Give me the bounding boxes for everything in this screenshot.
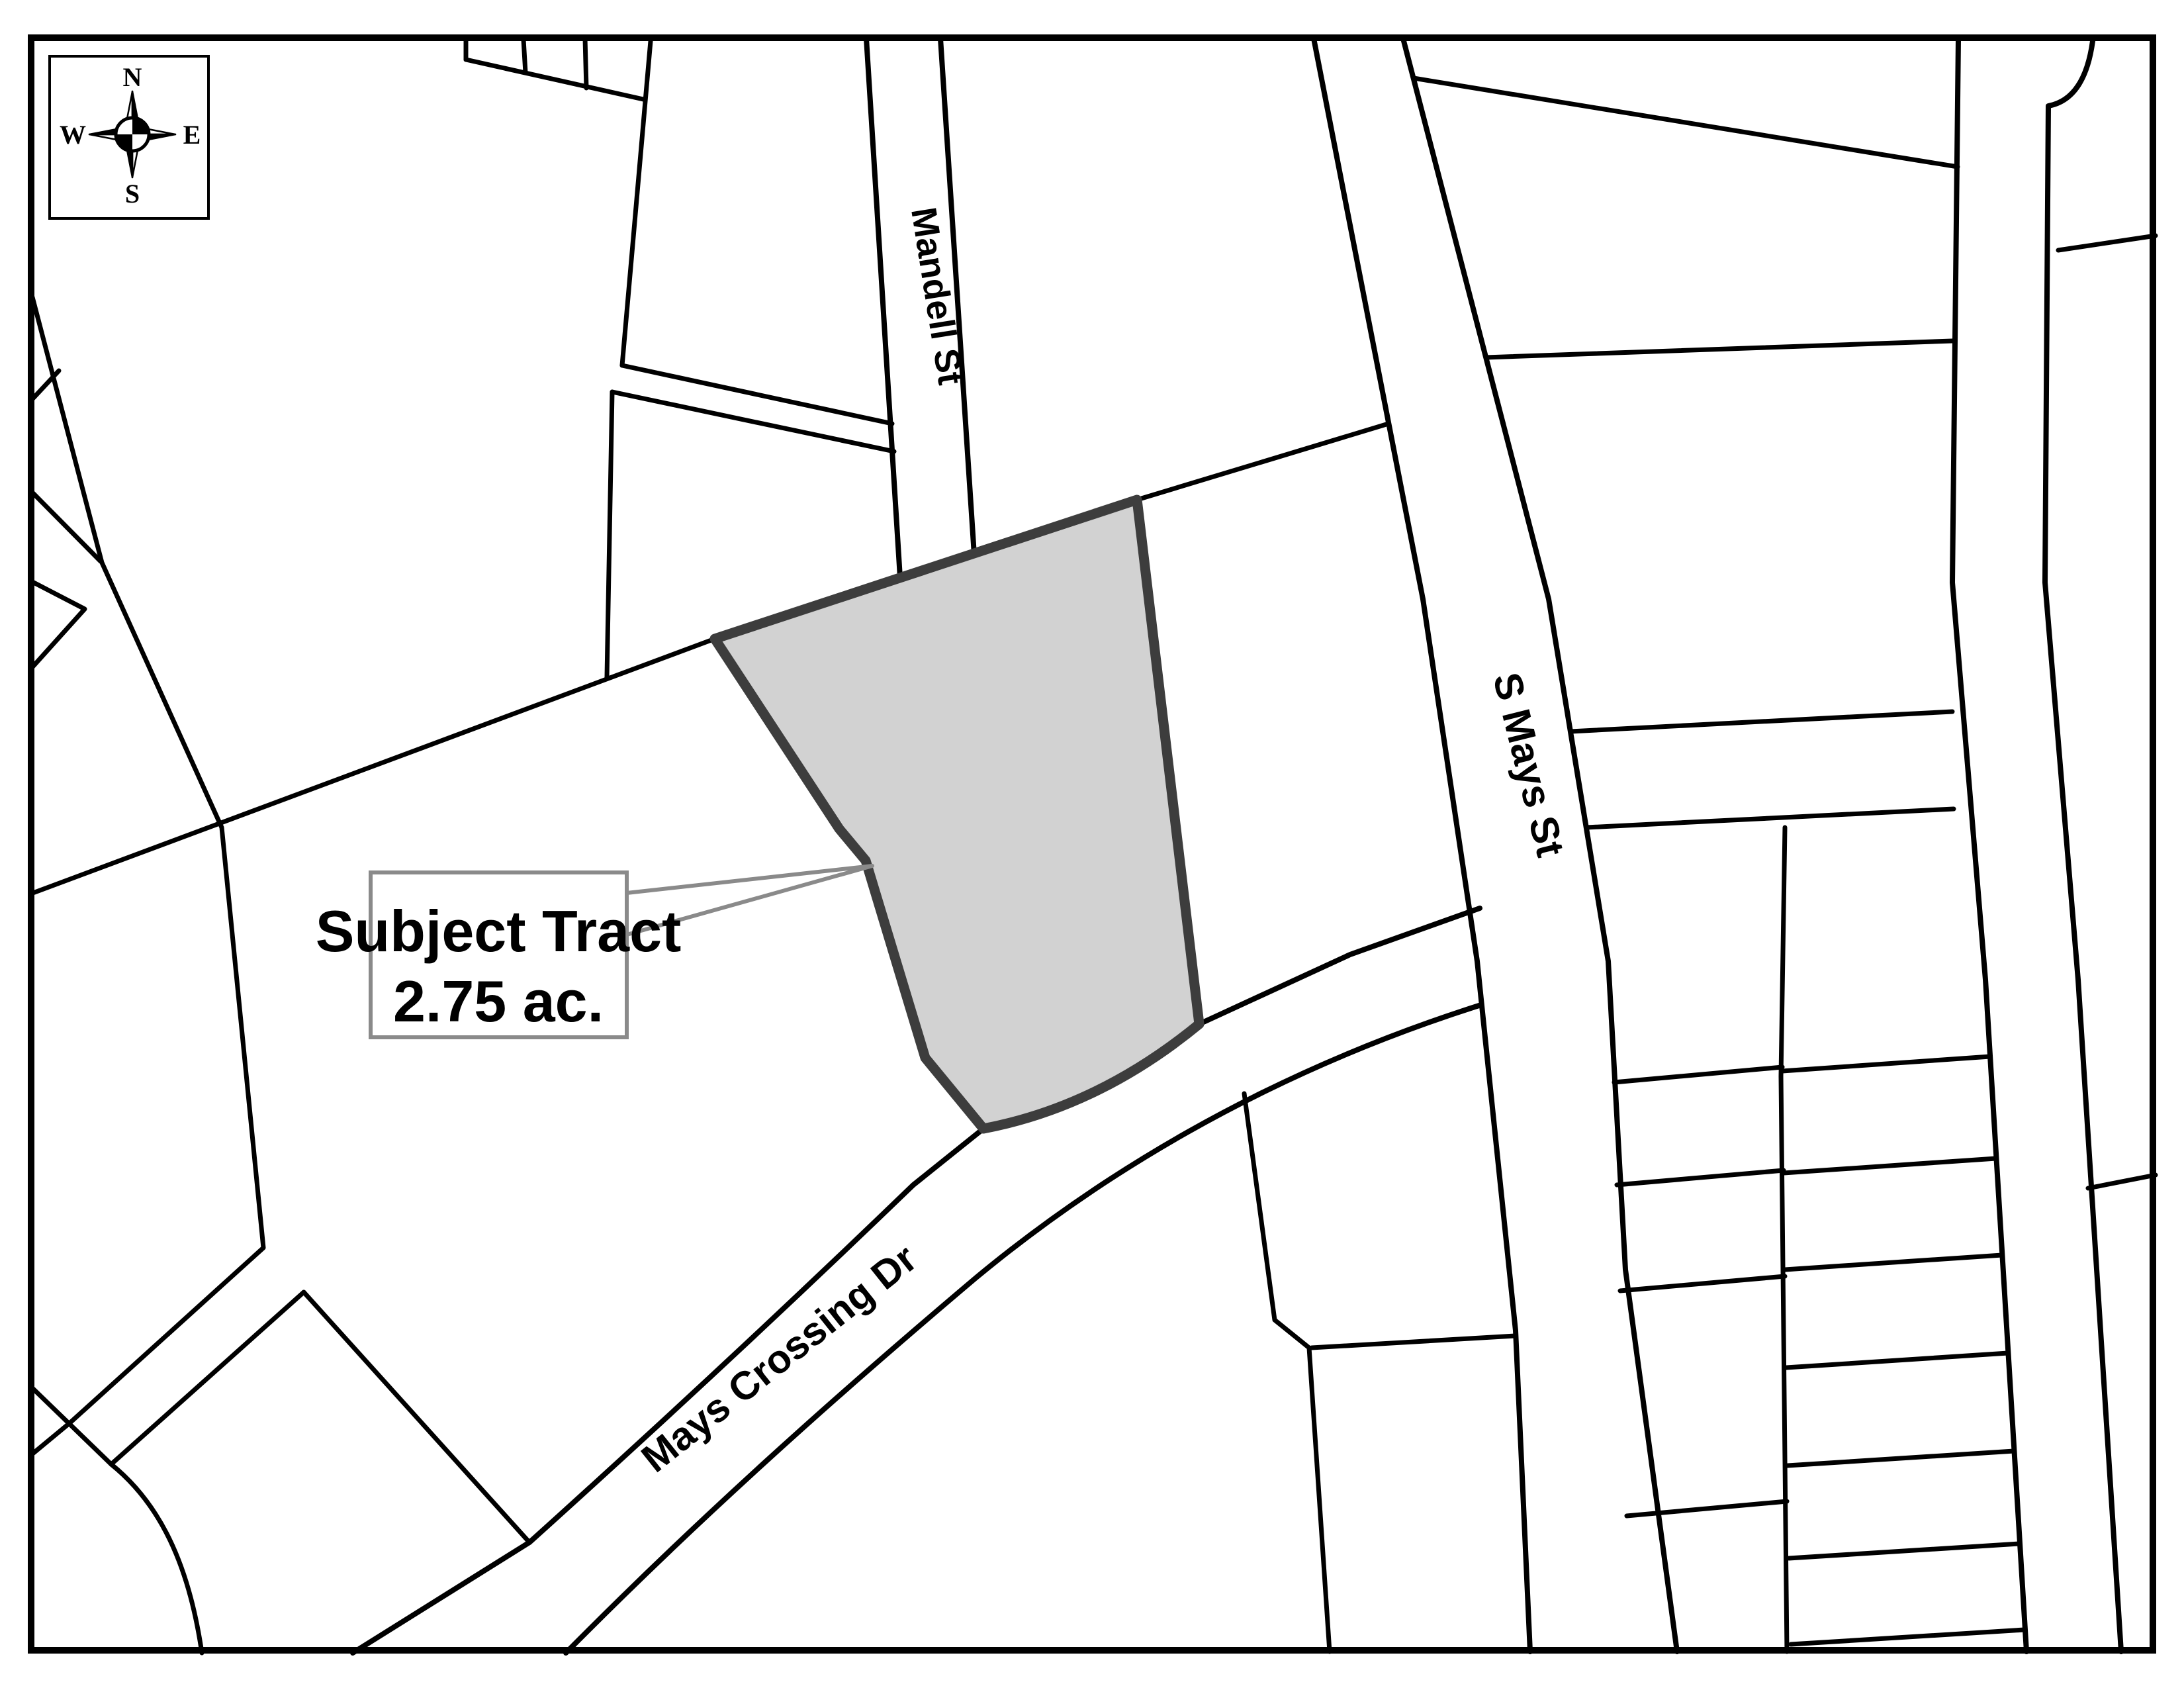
compass: N S W E bbox=[50, 56, 208, 218]
compass-letter-w: W bbox=[60, 120, 86, 150]
plat-map: Subject Tract 2.75 ac. Mandell St S Mays… bbox=[0, 0, 2184, 1688]
callout-area: 2.75 ac. bbox=[393, 968, 604, 1034]
compass-letter-e: E bbox=[183, 120, 201, 150]
callout-title: Subject Tract bbox=[316, 898, 682, 964]
map-canvas: Subject Tract 2.75 ac. Mandell St S Mays… bbox=[0, 0, 2184, 1688]
parcel-line bbox=[585, 38, 586, 88]
parcel-line bbox=[523, 40, 525, 73]
compass-letter-n: N bbox=[123, 62, 142, 92]
compass-letter-s: S bbox=[125, 179, 140, 209]
